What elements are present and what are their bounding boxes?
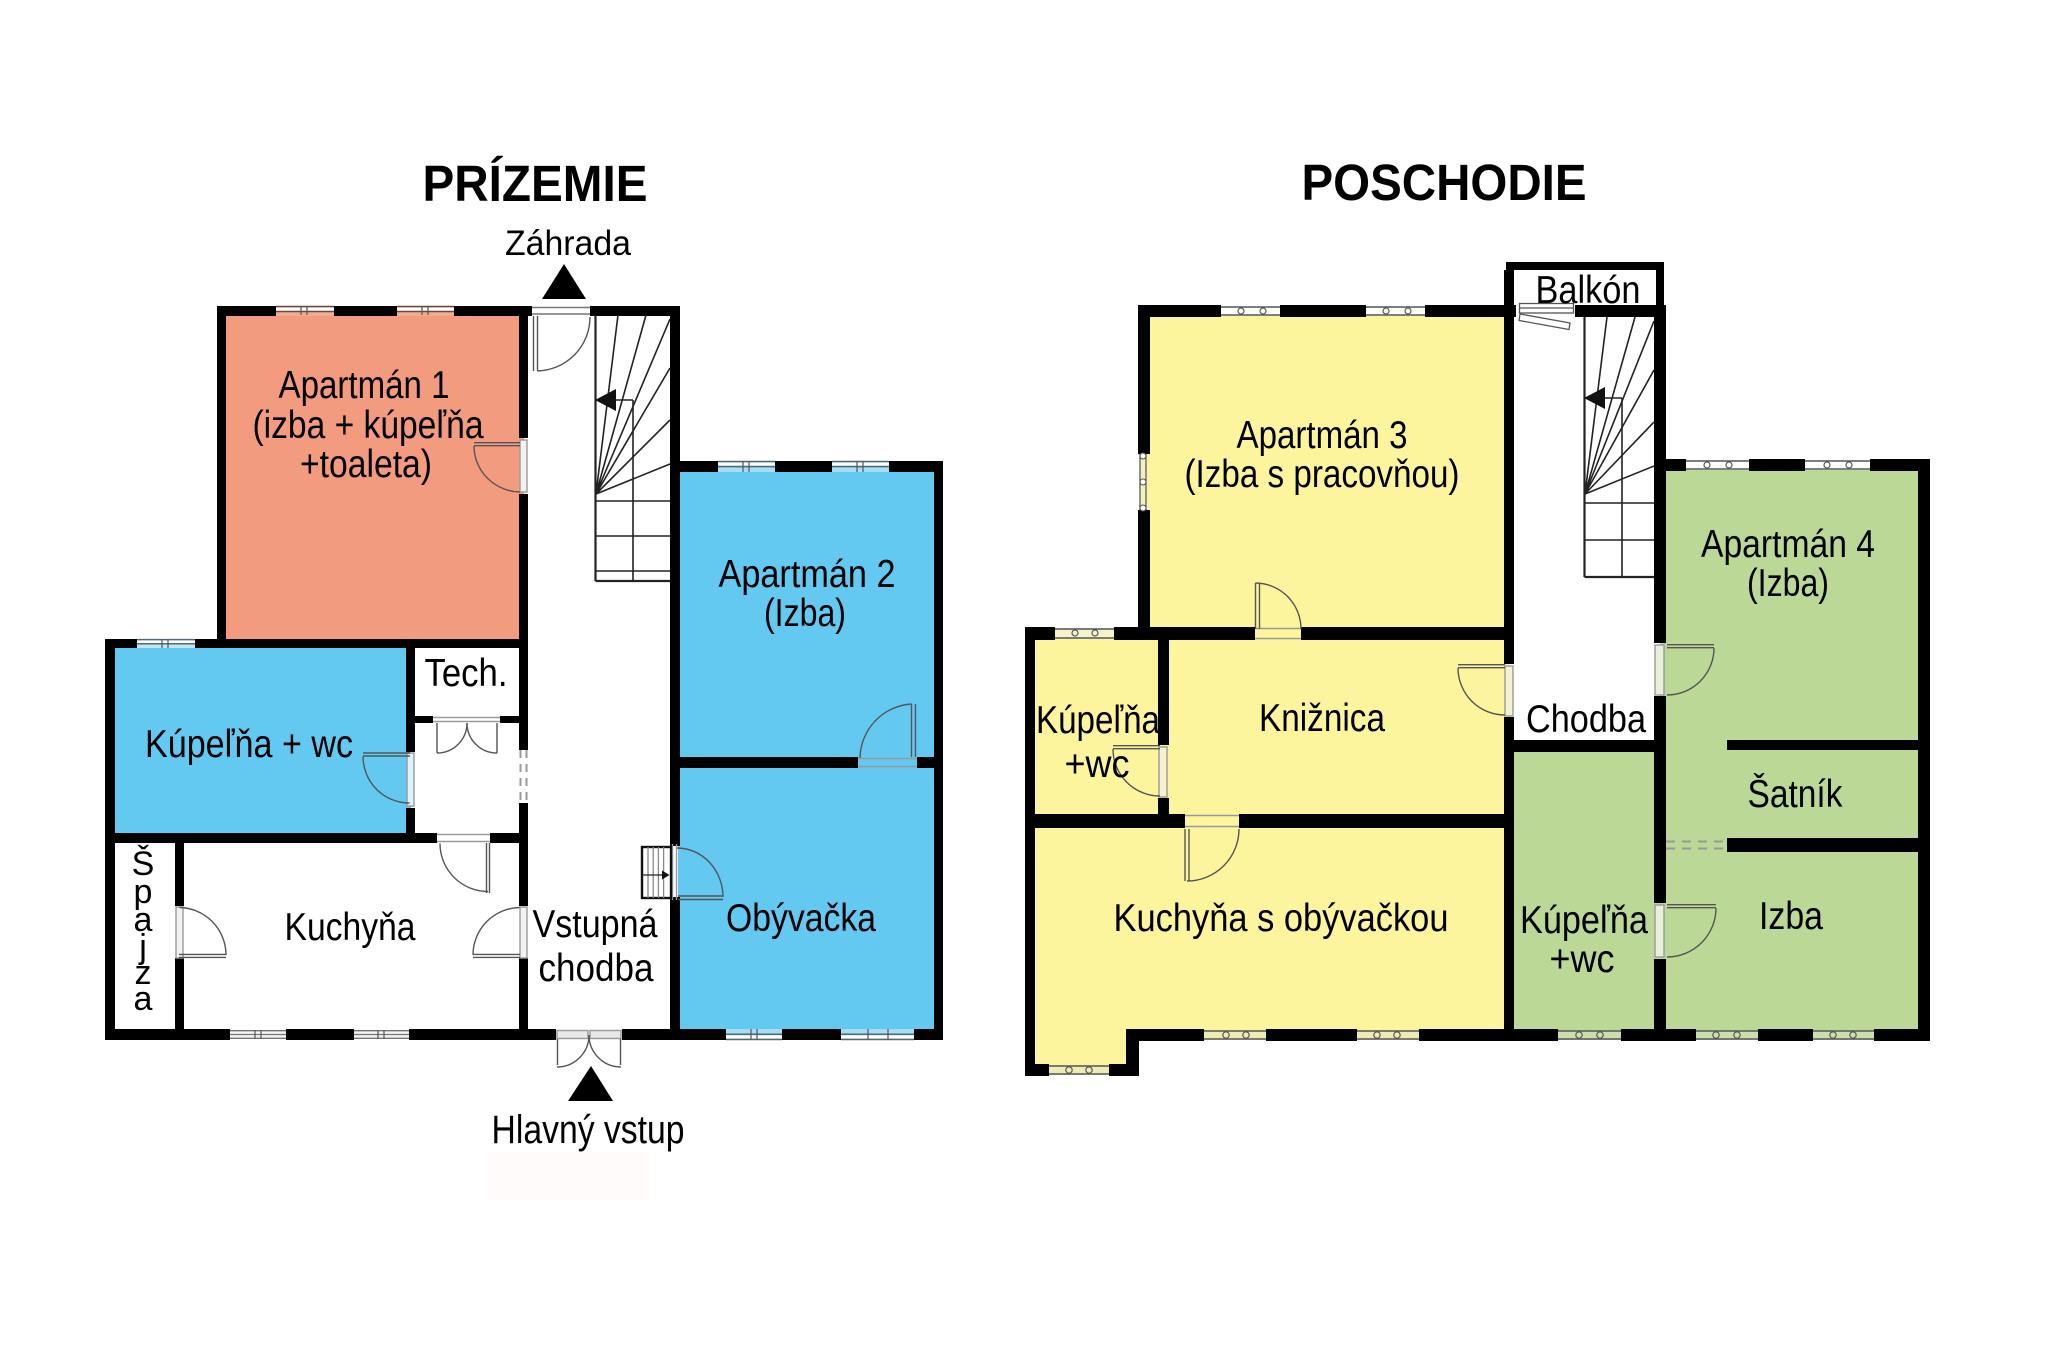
svg-text:POSCHODIE: POSCHODIE <box>1302 154 1587 211</box>
svg-text:PRÍZEMIE: PRÍZEMIE <box>423 155 648 212</box>
svg-text:Apartmán 2: Apartmán 2 <box>719 553 896 596</box>
svg-text:Šatník: Šatník <box>1748 772 1843 816</box>
svg-text:Apartmán 3: Apartmán 3 <box>1237 414 1408 457</box>
svg-text:Vstupná: Vstupná <box>533 903 658 946</box>
svg-text:+toaleta): +toaleta) <box>300 443 432 486</box>
svg-text:Apartmán 4: Apartmán 4 <box>1701 523 1875 566</box>
svg-text:Kúpeľňa: Kúpeľňa <box>1520 899 1648 942</box>
svg-text:Izba: Izba <box>1759 895 1823 938</box>
svg-text:Knižnica: Knižnica <box>1259 697 1385 740</box>
svg-text:Kúpeľňa: Kúpeľňa <box>1036 699 1160 742</box>
svg-text:Kuchyňa s obývačkou: Kuchyňa s obývačkou <box>1114 897 1449 940</box>
svg-text:Tech.: Tech. <box>425 652 508 695</box>
svg-text:Apartmán 1: Apartmán 1 <box>279 364 450 407</box>
svg-text:+wc: +wc <box>1065 743 1130 786</box>
svg-text:Hlavný vstup: Hlavný vstup <box>492 1108 685 1152</box>
svg-text:Obývačka: Obývačka <box>726 897 876 940</box>
svg-text:Balkón: Balkón <box>1536 269 1641 312</box>
svg-text:(Izba): (Izba) <box>1747 562 1829 605</box>
svg-text:+wc: +wc <box>1550 938 1615 981</box>
svg-text:a: a <box>134 980 153 1018</box>
svg-text:chodba: chodba <box>539 947 654 990</box>
svg-text:(izba + kúpeľňa: (izba + kúpeľňa <box>253 404 484 447</box>
svg-text:Kúpeľňa + wc: Kúpeľňa + wc <box>145 723 353 766</box>
svg-text:Chodba: Chodba <box>1526 698 1646 741</box>
svg-text:Kuchyňa: Kuchyňa <box>285 906 416 949</box>
svg-text:(Izba): (Izba) <box>764 592 846 635</box>
svg-text:Záhrada: Záhrada <box>505 224 632 263</box>
svg-text:(Izba s pracovňou): (Izba s pracovňou) <box>1185 453 1460 496</box>
